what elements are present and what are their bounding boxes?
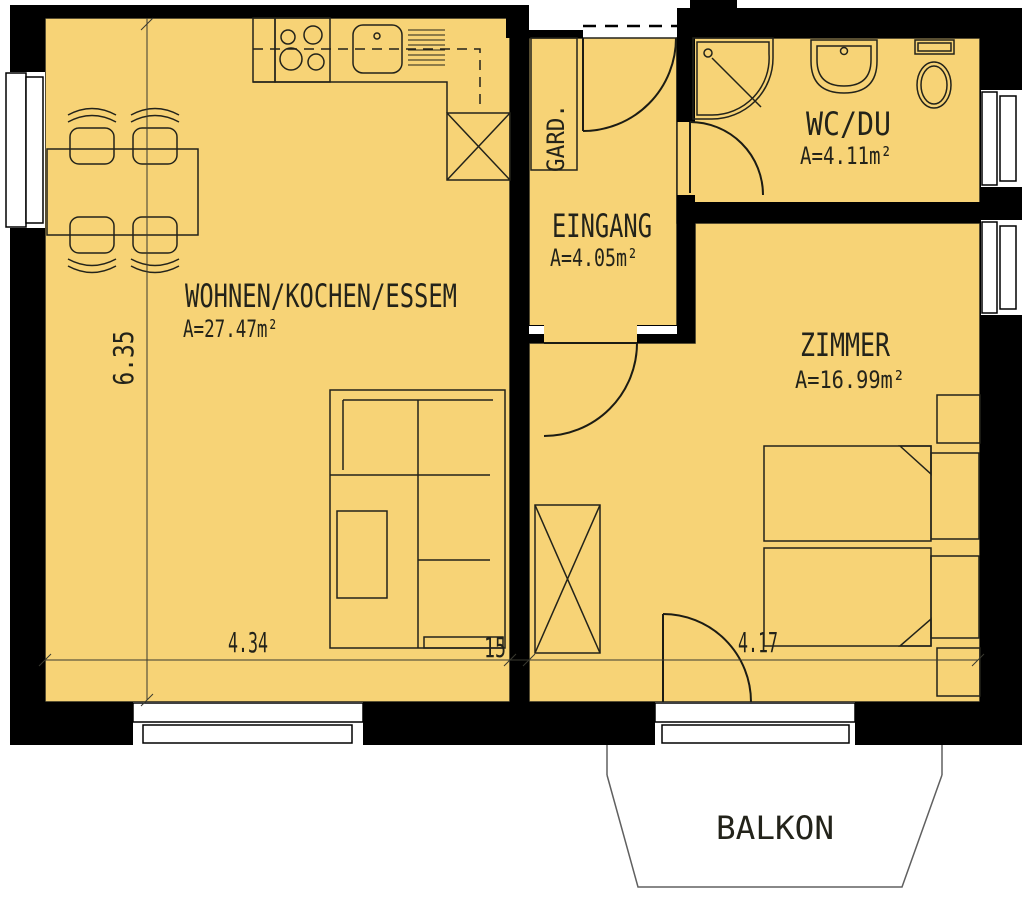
window-bottom-living bbox=[133, 702, 363, 745]
wall-left-upper bbox=[10, 5, 45, 72]
floor-plan-svg: WOHNEN/KOCHEN/ESSEM A=27.47m² EINGANG A=… bbox=[0, 0, 1030, 909]
wall-bath-left-lower bbox=[677, 195, 695, 343]
dim-living-width: 4.34 bbox=[228, 626, 268, 659]
wall-bottom-b bbox=[363, 702, 655, 745]
window-balcony-door bbox=[655, 702, 855, 745]
door-jamb-right bbox=[637, 326, 677, 334]
entrance-floor bbox=[529, 38, 677, 343]
bathroom-area: A=4.11m² bbox=[800, 142, 892, 170]
wall-living-right bbox=[510, 38, 529, 702]
wall-bath-south bbox=[695, 202, 980, 223]
wall-top-connector bbox=[506, 5, 529, 38]
garderobe-label: GARD. bbox=[542, 104, 570, 172]
wall-left-lower bbox=[10, 228, 45, 745]
window-right-bedroom bbox=[981, 220, 1022, 315]
bedroom-label: ZIMMER bbox=[800, 326, 891, 364]
door-jamb-left bbox=[529, 326, 544, 334]
entrance-label: EINGANG bbox=[552, 207, 652, 245]
entrance-area: A=4.05m² bbox=[550, 244, 638, 272]
living-room-area: A=27.47m² bbox=[183, 315, 278, 343]
wall-top-bath bbox=[677, 8, 1010, 38]
wall-bottom-a bbox=[10, 702, 133, 745]
wall-entry-top bbox=[529, 30, 583, 38]
window-left bbox=[5, 72, 45, 228]
wall-top-bath-bump bbox=[690, 0, 737, 8]
dim-living-height: 6.35 bbox=[107, 331, 140, 386]
bathroom-label: WC/DU bbox=[806, 105, 891, 143]
floor-plan: WOHNEN/KOCHEN/ESSEM A=27.47m² EINGANG A=… bbox=[0, 0, 1030, 909]
wall-bottom-c bbox=[855, 702, 1022, 745]
dim-bedroom-width: 4.17 bbox=[738, 626, 778, 659]
balcony-label: BALKON bbox=[716, 809, 834, 847]
window-right-bath bbox=[981, 90, 1022, 187]
dim-wall-thickness: 15 bbox=[484, 631, 506, 664]
wall-top-living bbox=[10, 5, 520, 18]
living-room-label: WOHNEN/KOCHEN/ESSEM bbox=[185, 277, 457, 315]
bedroom-area: A=16.99m² bbox=[795, 366, 905, 394]
